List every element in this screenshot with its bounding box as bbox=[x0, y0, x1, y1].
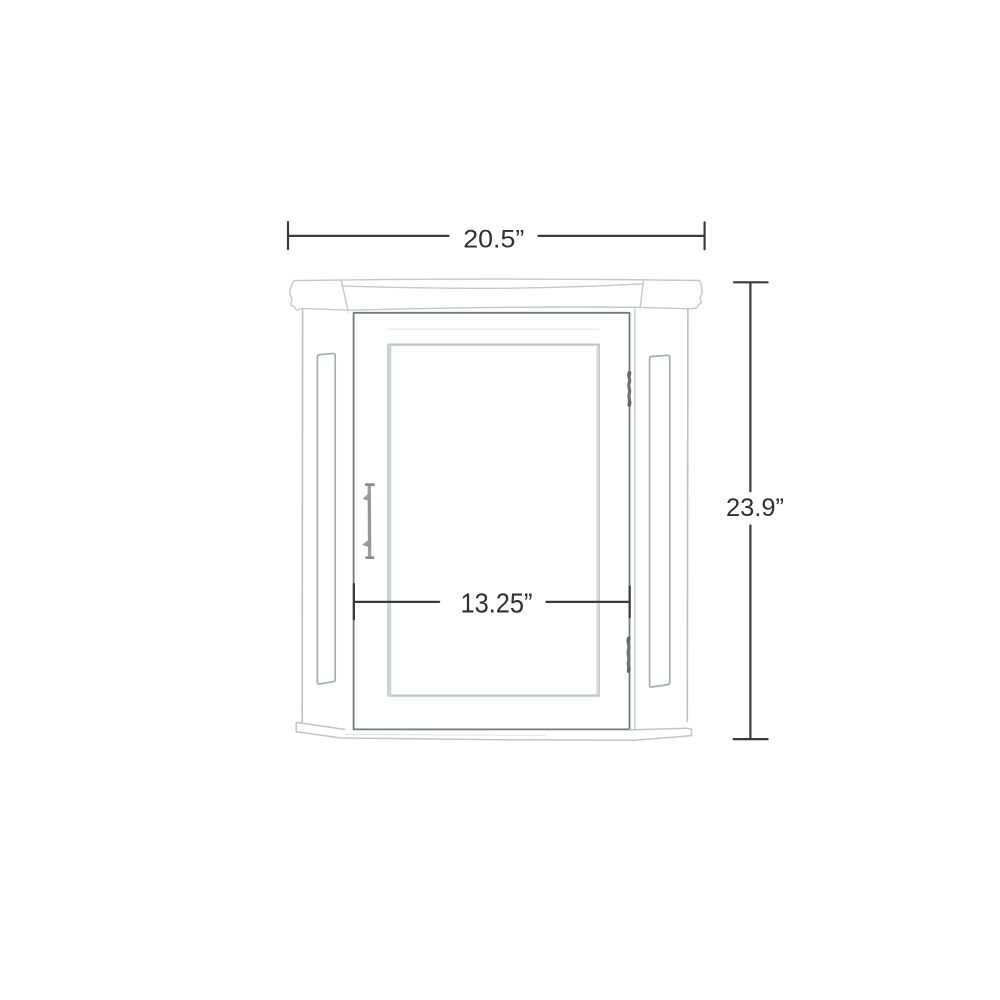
svg-text:20.5”: 20.5” bbox=[463, 226, 524, 254]
svg-text:23.9”: 23.9” bbox=[726, 494, 784, 522]
svg-text:13.25”: 13.25” bbox=[461, 587, 533, 618]
